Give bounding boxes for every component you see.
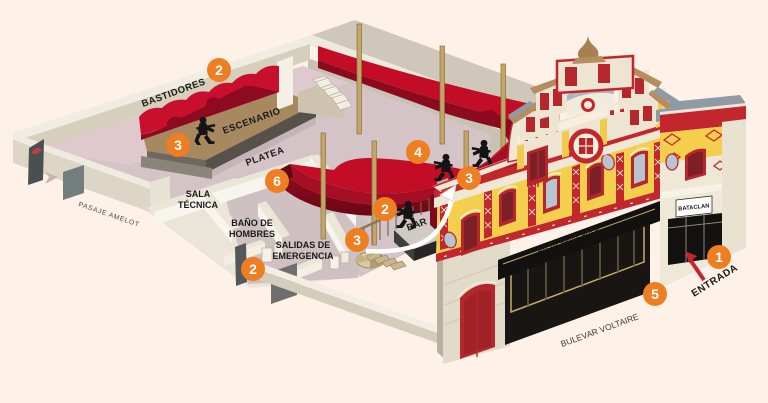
svg-text:SALIDAS DE: SALIDAS DE bbox=[276, 240, 331, 250]
svg-text:5: 5 bbox=[651, 286, 659, 302]
svg-text:3: 3 bbox=[465, 170, 473, 186]
svg-text:SALA: SALA bbox=[186, 189, 211, 199]
svg-text:6: 6 bbox=[273, 173, 281, 189]
svg-text:BAÑO DE: BAÑO DE bbox=[231, 218, 273, 228]
svg-text:3: 3 bbox=[174, 137, 182, 153]
svg-text:TÉCNICA: TÉCNICA bbox=[178, 200, 218, 210]
svg-text:3: 3 bbox=[353, 232, 361, 248]
svg-text:1: 1 bbox=[715, 249, 723, 265]
svg-text:EMERGENCIA: EMERGENCIA bbox=[272, 251, 334, 261]
svg-text:2: 2 bbox=[381, 201, 389, 217]
svg-text:HOMBRES: HOMBRES bbox=[229, 229, 275, 239]
svg-text:2: 2 bbox=[249, 261, 257, 277]
svg-text:2: 2 bbox=[215, 62, 223, 78]
svg-text:4: 4 bbox=[414, 144, 422, 160]
